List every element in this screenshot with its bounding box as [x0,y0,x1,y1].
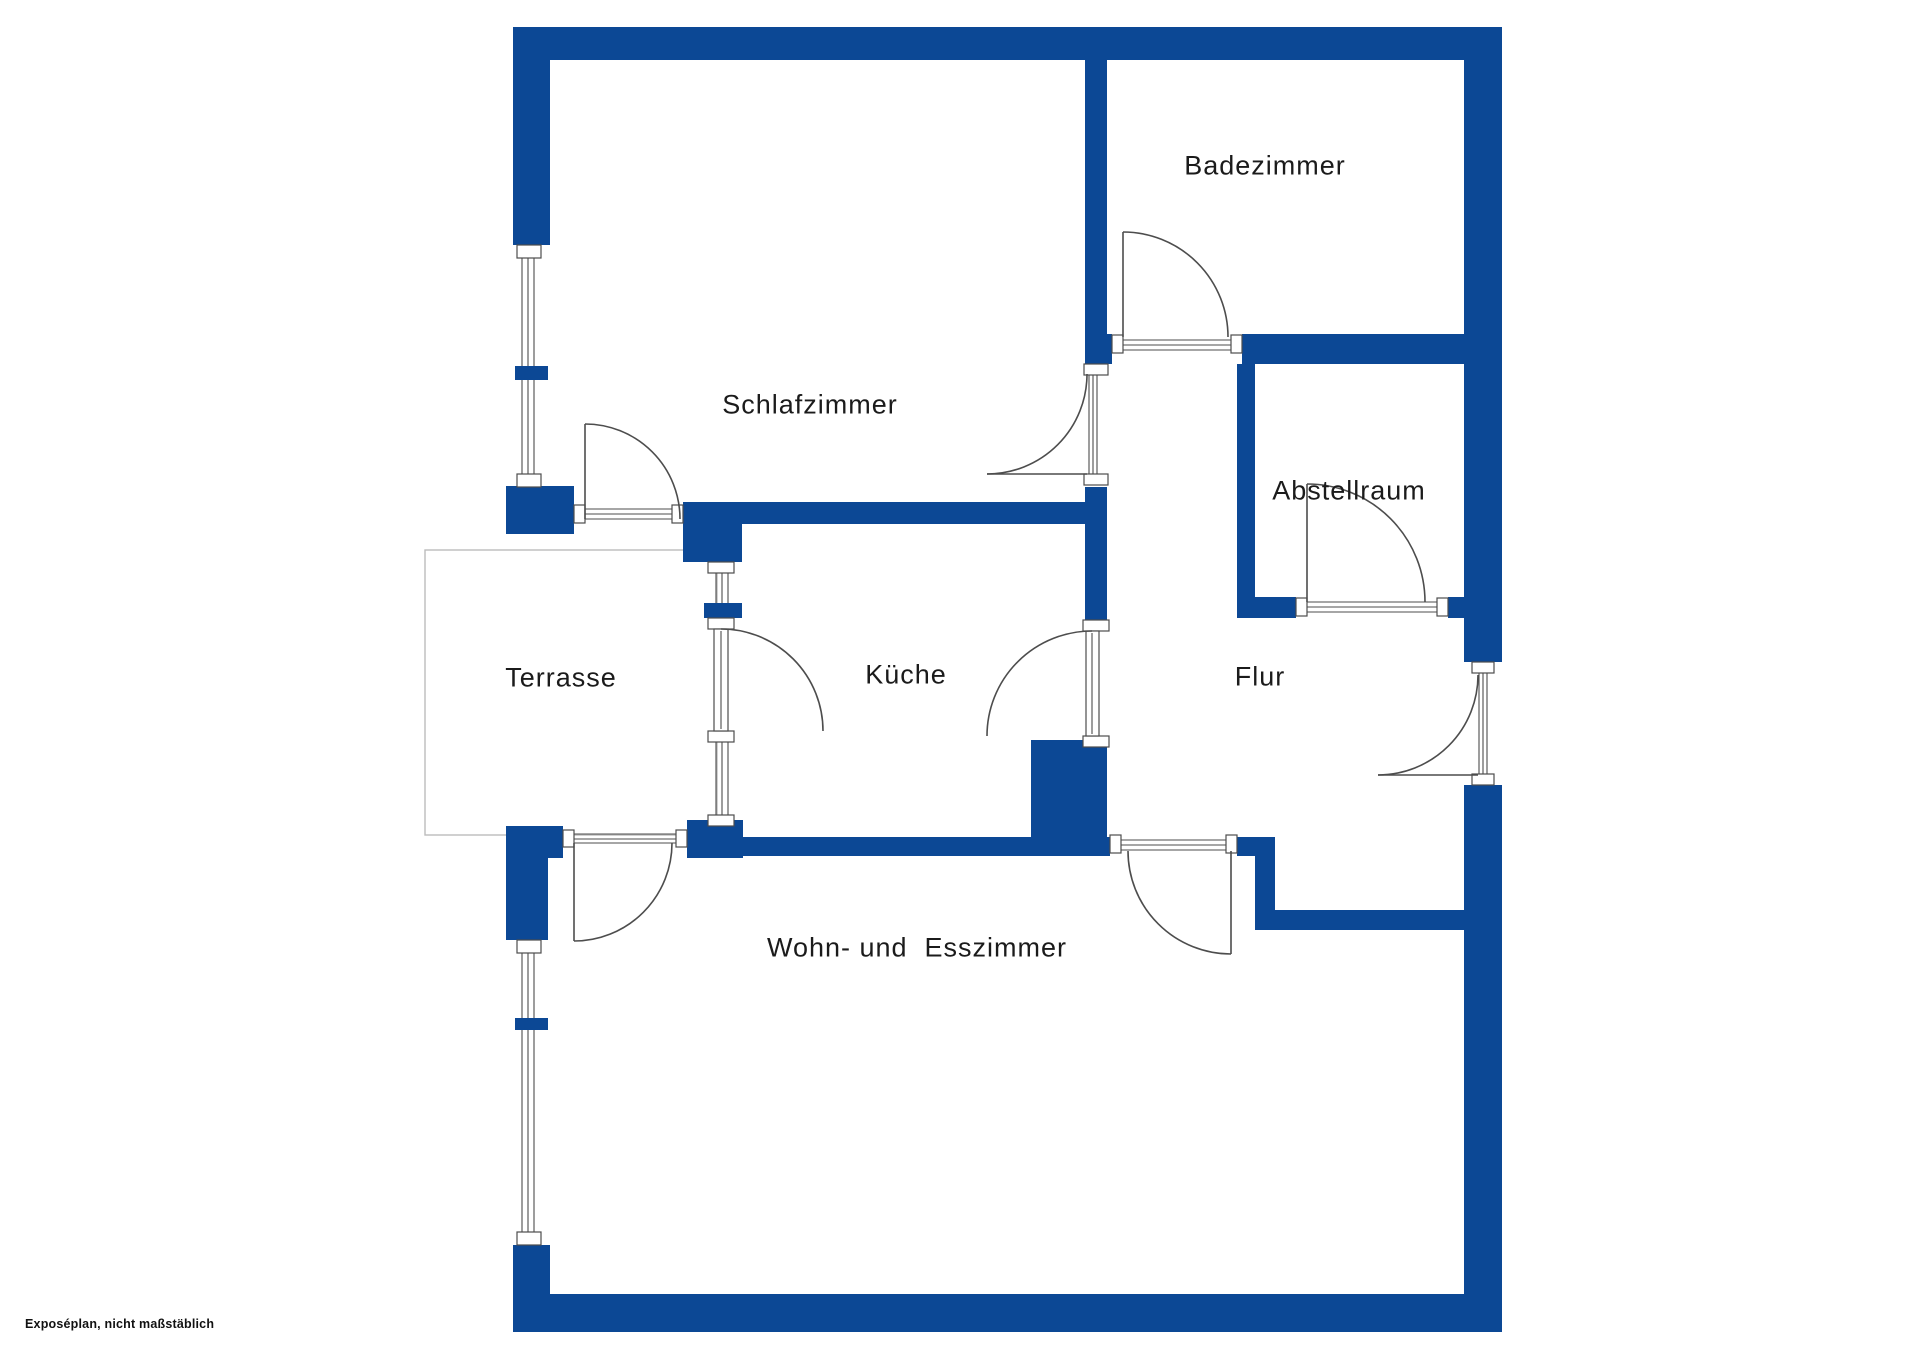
wall-badezimmer-south-stub [1085,334,1112,364]
wall-left-lower [513,1245,550,1294]
window-mullion-lower [515,1018,548,1030]
room-label-kueche: Küche [865,660,947,691]
door-terrasse-schlafzimmer [585,424,680,519]
kueche-west-mullion [704,603,742,618]
window-mullion-upper [515,366,548,380]
door-terrasse-wohnzimmer [574,843,672,941]
wall-badezimmer-south [1242,334,1464,364]
door-threshold-badezimmer [1112,335,1242,353]
disclaimer-text: Exposéplan, nicht maßstäblich [25,1317,214,1331]
wall-flur-south-west [1237,837,1275,856]
wall-flur-south-east [1275,910,1464,930]
wall-top [513,27,1502,60]
terrace-south-corner-ear [548,826,563,858]
door-entrance [1378,675,1478,775]
terrace-north-corner-block [506,486,574,534]
room-label-abstellraum: Abstellraum [1272,476,1426,507]
door-threshold-terrasse-schlafzimmer [574,505,683,523]
wall-badezimmer-west [1085,60,1107,334]
room-label-schlafzimmer: Schlafzimmer [722,390,898,421]
door-threshold-flur-wohnzimmer [1110,835,1237,853]
door-threshold-schlafzimmer-flur [1084,364,1108,485]
floor-plan-drawing [0,0,1920,1357]
door-kueche-west [714,629,823,731]
terrace-south-corner-block [506,826,548,940]
door-flur-wohnzimmer [1128,851,1231,954]
window-wohnzimmer-west [517,940,541,1245]
door-threshold-entrance [1472,662,1494,785]
wall-left-upper [513,27,550,245]
room-label-wohn-esszimmer: Wohn- und Esszimmer [767,933,1067,964]
wall-bottom [513,1294,1502,1332]
wall-abstellraum-south-west [1237,597,1296,618]
kueche-nw-block [683,502,742,562]
wall-schlafzimmer-kueche [742,502,1085,524]
door-schlafzimmer-flur [987,374,1087,474]
room-label-badezimmer: Badezimmer [1184,151,1346,182]
wall-abstellraum-south-stub [1448,597,1464,618]
room-label-terrasse: Terrasse [505,663,617,694]
wall-kueche-flur [1085,487,1107,630]
wall-flur-step [1255,856,1275,930]
wall-right-lower [1464,785,1502,1332]
room-label-flur: Flur [1235,662,1286,693]
door-badezimmer [1123,232,1228,337]
floor-plan-page: Badezimmer Schlafzimmer Abstellraum Terr… [0,0,1920,1357]
kueche-se-step-block [1031,740,1107,856]
wall-right-upper [1464,27,1502,662]
wall-abstellraum-west [1237,364,1255,618]
door-kueche-east [987,620,1109,747]
